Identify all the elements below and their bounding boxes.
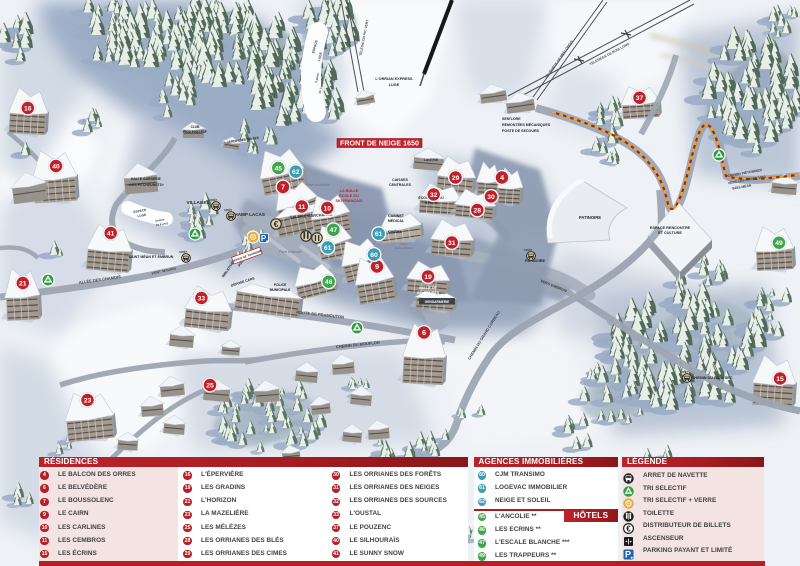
svg-text:P: P — [624, 549, 630, 559]
svg-text:€: € — [626, 525, 631, 534]
